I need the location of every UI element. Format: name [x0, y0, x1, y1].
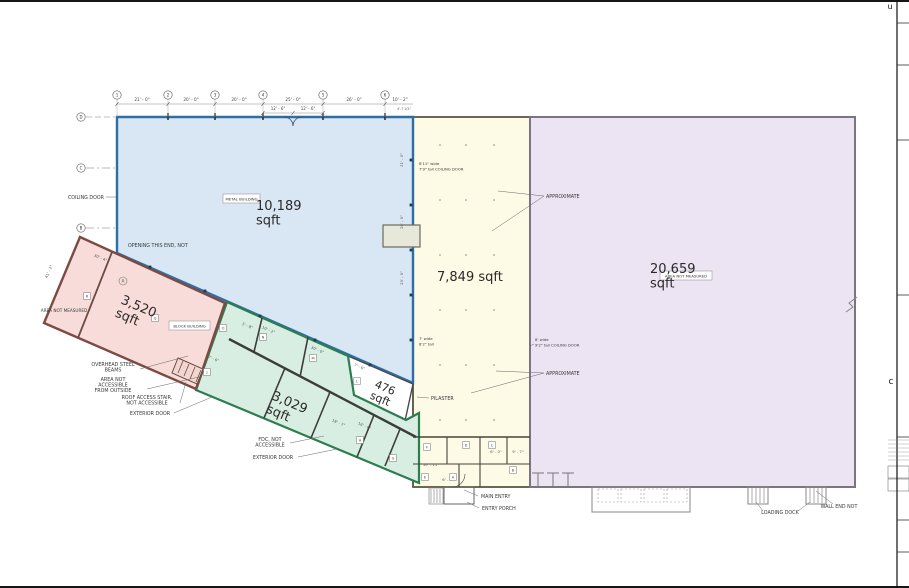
sheet-edge-letter-u: u: [887, 2, 892, 11]
plan-rect: [888, 466, 909, 478]
room-tag-letter: G: [392, 457, 395, 461]
dim-label: 20' - 0": [183, 97, 198, 102]
dim-label: 20' - 0": [231, 97, 246, 102]
dim-label: 26' - 0": [346, 97, 361, 102]
column-dot: [493, 199, 495, 201]
column-dot: [493, 144, 495, 146]
column-dot: [465, 254, 467, 256]
leader-line: [756, 502, 763, 511]
leader-line: [467, 502, 479, 508]
column-dot: [493, 419, 495, 421]
room-tag-letter: L: [356, 380, 358, 384]
annotation-door-note-mid: 7' wide8'2" tall: [419, 336, 434, 347]
grid-bubble-label: 4: [262, 93, 265, 98]
annotation-loading-dock: LOADING DOCK: [761, 510, 799, 516]
dim-label-rotated: 20' - 0": [399, 215, 404, 229]
column-dot: [465, 364, 467, 366]
grid-bubble-label: 5: [322, 93, 325, 98]
grid-bubble-label: C: [80, 166, 83, 171]
grid-bubble-label: D: [79, 115, 82, 120]
column-dot: [465, 199, 467, 201]
column-dot: [493, 254, 495, 256]
dim-label: 12' - 6": [271, 106, 286, 111]
annotation-approximate-top: APPROXIMATE: [546, 194, 580, 200]
annotation-approximate-bottom: APPROXIMATE: [546, 371, 580, 377]
annotation-area-not-accessible: AREA NOTACCESSIBLEFROM OUTSIDE: [95, 377, 132, 394]
dim-label-rotated: 23' - 0": [399, 271, 404, 285]
column-mark: [410, 249, 413, 252]
annotation-entry-porch: ENTRY PORCH: [482, 506, 516, 512]
annotation-area-not-measured-pink: AREA NOT MEASURED: [41, 308, 88, 313]
column-mark: [410, 294, 413, 297]
grid-bubble-label: 1: [116, 93, 119, 98]
column-dot: [465, 309, 467, 311]
floor-plan-sheet: 12345621' - 0"20' - 0"20' - 0"25' - 0"26…: [0, 0, 909, 588]
annotation-exterior-door-pink: EXTERIOR DOOR: [130, 411, 171, 417]
column-dot: [439, 199, 441, 201]
sqft-label-warehouse-7849: 7,849 sqft: [437, 270, 503, 285]
column-dot: [439, 419, 441, 421]
annotation-roof-access-stair: ROOF ACCESS STAIR,NOT ACCESSIBLE: [122, 395, 173, 407]
region-warehouse-7849: [413, 117, 530, 487]
grid-bubble-label: 6: [384, 93, 387, 98]
regions-layer: [44, 117, 855, 487]
dim-label-rotated: 21' - 0": [399, 153, 404, 167]
grid-bubble-label: 2: [167, 93, 170, 98]
plan-rect: [806, 487, 826, 504]
dim-label: 12' - 6": [301, 106, 316, 111]
dim-label-rotated: 6' - 0": [490, 449, 502, 454]
plan-rect: [621, 489, 641, 502]
column-mark: [204, 290, 207, 293]
column-dot: [439, 309, 441, 311]
column-dot: [465, 419, 467, 421]
dim-label: 10' - 2": [392, 97, 407, 102]
plan-rect: [888, 479, 909, 491]
leader-line: [174, 397, 212, 413]
column-mark: [410, 159, 413, 162]
column-dot: [439, 364, 441, 366]
room-tag-letter: H: [359, 439, 362, 443]
column-mark: [369, 364, 372, 367]
region-warehouse-20659: [530, 117, 855, 487]
annotation-pilaster: PILASTER: [431, 396, 454, 402]
column-dot: [465, 144, 467, 146]
room-tag-letter: M: [311, 357, 314, 361]
dim-label-rotated: 9' - 7": [512, 449, 524, 454]
annotation-opening-this-end: OPENING THIS END, NOT: [128, 243, 188, 249]
plan-rect: [598, 489, 618, 502]
leader-line: [816, 491, 833, 504]
plan-rect: [444, 487, 474, 504]
dim-label: 25' - 0": [285, 97, 300, 102]
annotation-wall-end-not: WALL END NOT: [821, 504, 858, 510]
annotation-overhead-steel-beams: OVERHEAD STEELBEAMS: [91, 362, 135, 374]
room-tag-letter: O: [222, 327, 225, 331]
annotation-fdc-not-accessible: FDC, NOTACCESSIBLE: [255, 437, 284, 449]
block-building-tag: BLOCK BUILDING: [173, 323, 205, 328]
column-mark: [259, 315, 262, 318]
page-top-border: [0, 0, 909, 2]
floor-plan-svg: 12345621' - 0"20' - 0"20' - 0"25' - 0"26…: [0, 0, 909, 588]
column-dot: [493, 364, 495, 366]
annotation-exterior-door-green: EXTERIOR DOOR: [253, 455, 294, 461]
dim-label-rotated: 41' - 2": [44, 264, 54, 279]
sheet-edge-letter-c: c: [889, 377, 894, 387]
column-mark: [149, 266, 152, 269]
plan-rect: [667, 489, 687, 502]
grid-bubble-label: A: [122, 279, 125, 284]
annotation-main-entry: MAIN ENTRY: [481, 494, 511, 500]
room-tag-letter: D: [465, 444, 468, 448]
column-mark: [410, 204, 413, 207]
grid-bubble-label: B: [80, 226, 83, 231]
column-mark: [410, 339, 413, 342]
column-dot: [439, 254, 441, 256]
leader-line: [298, 449, 337, 457]
dim-label: 21' - 0": [134, 97, 149, 102]
leader-line: [180, 382, 186, 403]
plan-rect: [748, 487, 768, 504]
leader-line: [464, 490, 478, 496]
metal-building-tag: METAL BUILDING: [225, 196, 257, 201]
column-dot: [439, 144, 441, 146]
dim-label-tiny: 4'-7 1/2": [397, 107, 411, 111]
annotation-coiling-door-left: COILING DOOR: [68, 195, 105, 201]
grid-bubble-label: 3: [214, 93, 217, 98]
plan-rect: [644, 489, 664, 502]
room-tag-letter: J: [205, 371, 207, 375]
room-tag-letter: N: [262, 336, 265, 340]
column-dot: [493, 309, 495, 311]
dim-label-rotated: 10' - 11": [423, 462, 439, 467]
column-mark: [314, 339, 317, 342]
room-tag-letter: F: [426, 446, 428, 450]
leader-line: [798, 502, 810, 511]
